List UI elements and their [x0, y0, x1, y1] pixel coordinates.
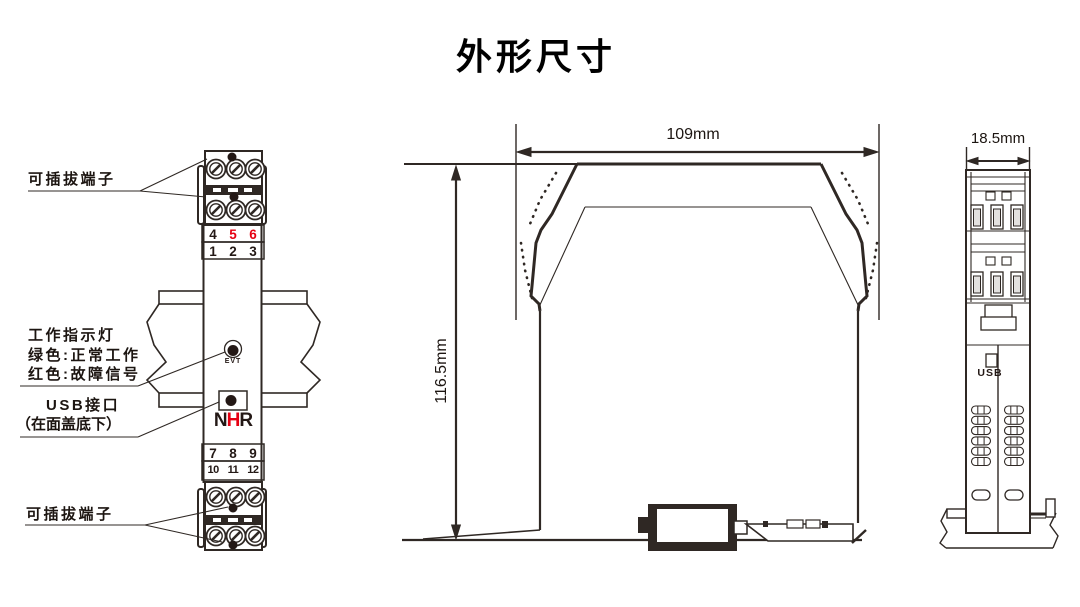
brand-logo: NHR	[203, 410, 263, 432]
top-terminal-block	[198, 151, 266, 224]
width-dimension-label: 109mm	[648, 126, 738, 144]
usb-label-end-view: USB	[974, 367, 1006, 379]
label-usb-port-line1: USB接口	[46, 394, 120, 415]
terminal-dot	[230, 193, 239, 202]
terminal-numbers-101112: 10 11 12	[203, 464, 263, 476]
terminal-number: 12	[247, 464, 258, 476]
din-rail-clip	[638, 504, 866, 551]
indicator-label-line3: 红色:故障信号	[28, 365, 141, 385]
device-body-end	[966, 170, 1030, 533]
terminal-number: 8	[229, 446, 237, 461]
height-dimension	[404, 164, 578, 539]
side-view	[402, 124, 879, 551]
label-usb-port-line2: （在面盖底下）	[16, 413, 121, 434]
end-width-dimension-label: 18.5mm	[962, 130, 1034, 147]
bottom-slot	[1005, 490, 1023, 500]
terminal-dot	[229, 541, 238, 550]
label-pluggable-terminal-bottom: 可插拔端子	[26, 503, 114, 524]
terminal-number: 3	[249, 244, 257, 259]
indicator-label-line1: 工作指示灯	[28, 326, 141, 346]
label-pluggable-terminal-top: 可插拔端子	[28, 168, 116, 189]
status-led	[225, 341, 242, 358]
terminal-numbers-789: 7 8 9	[203, 446, 263, 461]
height-dimension-label: 116.5mm	[433, 328, 451, 414]
terminal-number: 4	[209, 227, 217, 242]
terminal-dot	[229, 504, 238, 513]
cover-latch	[985, 305, 1012, 318]
bottom-terminal-block	[198, 482, 266, 550]
terminal-number: 2	[229, 244, 237, 259]
usb-port-end	[986, 354, 997, 367]
led-label-evt: EVT	[219, 358, 247, 365]
terminal-number: 1	[209, 244, 217, 259]
indicator-label-line2: 绿色:正常工作	[28, 346, 141, 366]
logo-letter-h: H	[227, 410, 240, 431]
logo-letter-n: N	[214, 410, 227, 431]
width-dimension	[516, 124, 879, 320]
terminal-dot	[228, 153, 237, 162]
end-width-dimension	[967, 147, 1030, 171]
terminal-number: 7	[209, 446, 217, 461]
clamp-bar	[198, 166, 204, 224]
terminal-number: 9	[249, 446, 257, 461]
terminal-number: 5	[229, 227, 237, 242]
device-profile	[402, 164, 877, 540]
end-view	[940, 147, 1058, 548]
terminal-numbers-456: 4 5 6	[203, 227, 263, 242]
bottom-slot	[972, 490, 990, 500]
label-work-indicator: 工作指示灯 绿色:正常工作 红色:故障信号	[28, 326, 141, 385]
page-title: 外形尺寸	[413, 28, 659, 80]
terminal-number: 11	[228, 464, 239, 476]
diagram-canvas: 外形尺寸 可插拔端子 工作指示灯 绿色:正常工作 红色:故障信号 USB接口 （…	[0, 0, 1080, 607]
usb-port	[219, 391, 247, 410]
terminal-number: 6	[249, 227, 257, 242]
terminal-numbers-123: 1 2 3	[203, 244, 263, 259]
logo-letter-r: R	[239, 410, 252, 431]
terminal-number: 10	[207, 464, 218, 476]
dimension-drawing	[0, 0, 1080, 607]
